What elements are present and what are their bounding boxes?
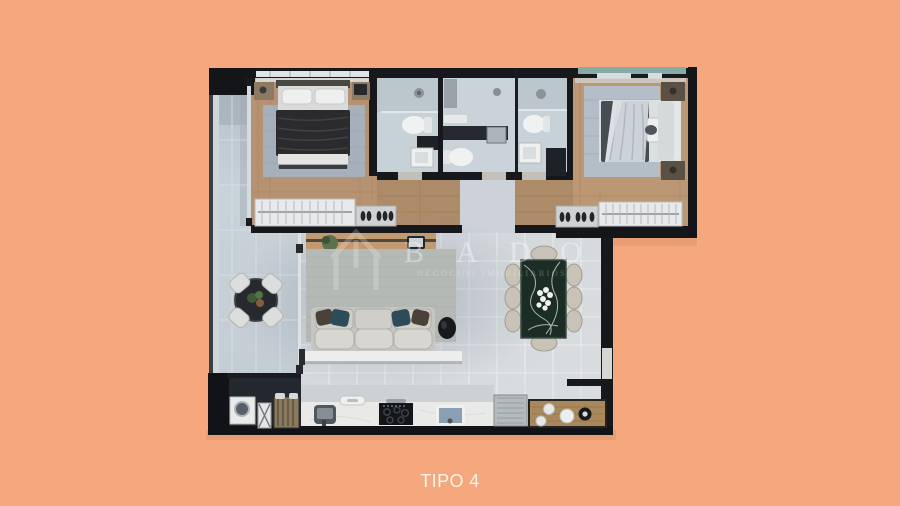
svg-text:D: D [509, 236, 531, 269]
svg-text:B: B [404, 236, 424, 269]
svg-text:NEGOCIOS IMOBILIARIOS: NEGOCIOS IMOBILIARIOS [417, 268, 567, 278]
svg-text:A: A [456, 236, 478, 269]
svg-text:O: O [560, 236, 582, 269]
